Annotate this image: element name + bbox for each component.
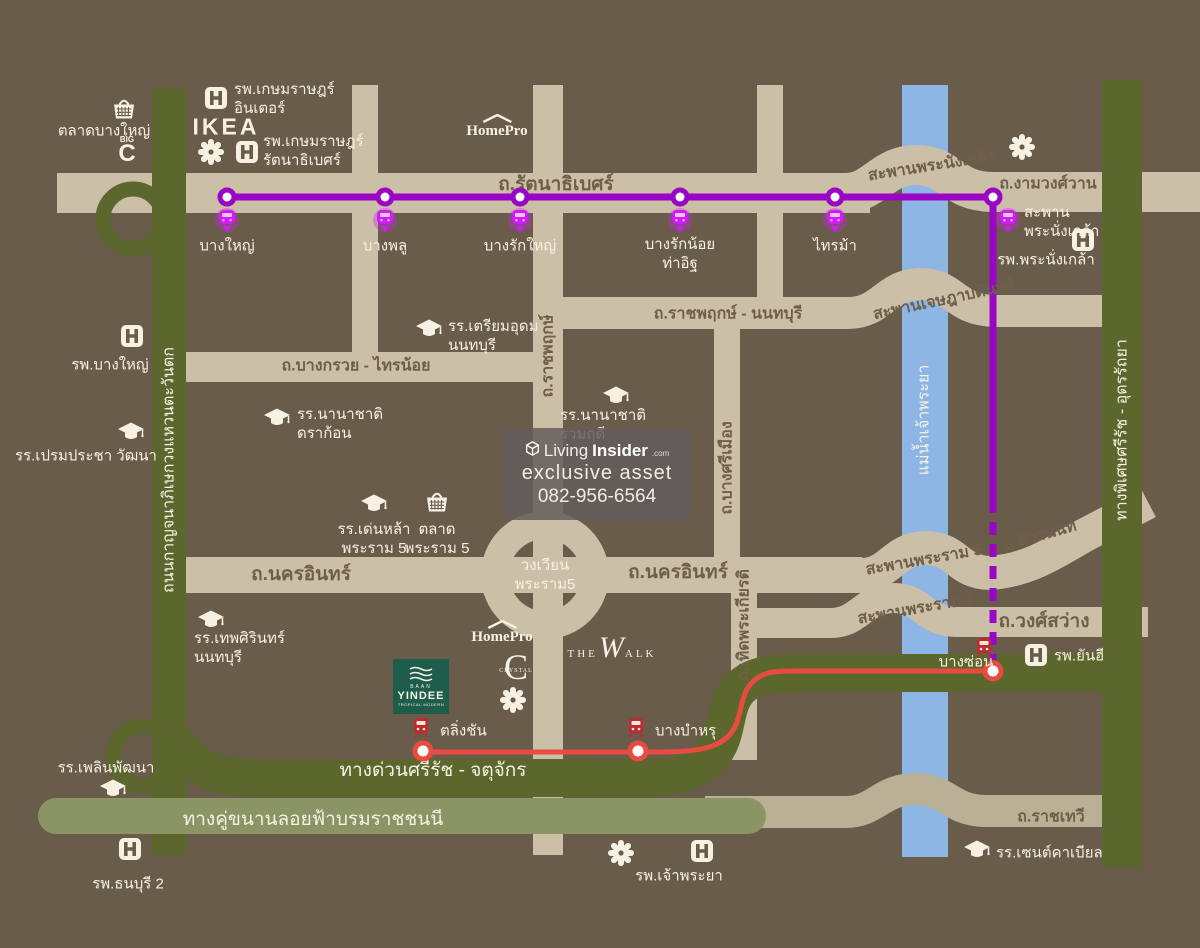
label-line: ตลาดบางใหญ่ — [58, 122, 150, 141]
station-label: บางซ่อน — [939, 653, 994, 672]
label-line: รร.นานาชาติ — [297, 405, 383, 424]
hospital-icon — [690, 839, 714, 863]
flower-icon — [1008, 133, 1036, 161]
school-icon — [415, 319, 443, 340]
road-label: ถ.ราชพฤกษ์ - นนทบุรี — [654, 302, 802, 327]
road-label: ถ.นครอินทร์ — [251, 559, 351, 589]
red-station-circle — [413, 741, 434, 762]
red-station-circle — [628, 741, 649, 762]
label-line: ตลิ่งชัน — [440, 722, 487, 741]
poi-label: รพ.บางใหญ่ — [71, 356, 148, 375]
label-line: รัตนาธิเบศร์ — [263, 151, 364, 170]
road-label: ถ.เทิดพระเกียรติ — [732, 569, 757, 681]
hospital-icon — [204, 86, 228, 110]
label-line: รร.เซนต์คาเบียล — [996, 844, 1103, 863]
station-label: ไทรม้า — [813, 237, 857, 256]
label-line: รพ.เกษมราษฎร์ — [234, 80, 335, 99]
ikea-logo: IKEA — [193, 114, 260, 141]
poi-label: รพ.เกษมราษฎร์อินเตอร์ — [234, 80, 335, 118]
road-label: ถนนกาญจนาภิเษกวงแหวนตะวันตก — [157, 347, 182, 593]
label-line: รร.นานาชาติ — [560, 406, 646, 425]
poi-label: รร.เซนต์คาเบียล — [996, 844, 1103, 863]
school-icon — [197, 610, 225, 631]
station-label: บางรักน้อยท่าอิฐ — [645, 235, 715, 273]
label-line: พระราม 5 — [338, 539, 411, 558]
label-line: ไทรม้า — [813, 237, 857, 256]
metro-pin-icon — [821, 207, 849, 237]
big-c-logo: BIG C — [118, 137, 135, 165]
flower-icon — [607, 839, 635, 867]
label-line: บางซ่อน — [939, 653, 994, 672]
station-label: บางรักใหญ่ — [484, 237, 556, 256]
label-line: พระราม5 — [515, 575, 576, 594]
label-line: พระราม 5 — [405, 539, 470, 558]
market-icon — [111, 96, 137, 121]
poi-label: รพ.เจ้าพระยา — [635, 867, 723, 886]
label-line: บางรักใหญ่ — [484, 237, 556, 256]
hospital-icon — [1024, 643, 1048, 667]
label-line: ดราก้อน — [297, 424, 383, 443]
label-line: บางใหญ่ — [199, 237, 254, 256]
label-line: สะพาน — [1024, 203, 1099, 222]
road-label: ถ.บางศรีเมือง — [715, 421, 740, 514]
hospital-icon — [120, 324, 144, 348]
label-line: วงเวียน — [515, 556, 576, 575]
metro-pin-icon — [213, 207, 241, 237]
baan-yindee-logo: BAAN YINDEE TROPICAL MODERN — [393, 659, 449, 714]
poi-label: รร.เตรียมอุดมนนทบุรี — [448, 317, 539, 355]
roof-icon — [485, 620, 519, 629]
flower-icon — [197, 138, 225, 166]
road-label: ทางด่วนศรีรัช - จตุจักร — [339, 755, 526, 785]
the-walk-w: W — [599, 631, 624, 665]
homepro-label: HomePro — [466, 123, 527, 140]
poi-label: รร.นานาชาติดราก้อน — [297, 405, 383, 443]
label-line: บางพลู — [363, 237, 407, 256]
map-canvas: ถ.รัตนาธิเบศร์สะพานพระนั่งเกล้าถ.งามวงศ์… — [0, 0, 1200, 948]
crystal-c: C — [499, 652, 533, 682]
metro-pin-icon — [666, 207, 694, 237]
purple-station-circle — [218, 188, 237, 207]
road-label: ถ.ติวานนท์ — [1001, 514, 1080, 559]
the-walk-logo: THE W ALK — [568, 631, 657, 665]
metro-pin-icon — [506, 207, 534, 237]
poi-label: รร.เด่นหล้าพระราม 5 — [338, 520, 411, 558]
roundabout-label: วงเวียนพระราม5 — [515, 556, 576, 594]
watermark-exclusive-asset: exclusive asset — [522, 462, 673, 485]
road-label: ทางพิเศษศรีรัช - อุดรรัถยา — [1110, 339, 1135, 521]
watermark-living: Living — [544, 441, 588, 461]
label-line: รพ.ยันฮี — [1054, 647, 1104, 666]
flower-icon — [499, 686, 527, 714]
homepro-label: HomePro — [471, 629, 532, 646]
poi-label: ตลาดบางใหญ่ — [58, 122, 150, 141]
big-c-c: C — [118, 143, 135, 165]
label-line: ตลาด — [405, 520, 470, 539]
purple-station-circle — [376, 188, 395, 207]
school-icon — [360, 494, 388, 515]
cube-icon — [525, 441, 540, 456]
metro-pin-icon — [994, 207, 1022, 237]
road-label: แม่น้ำเจ้าพระยา — [912, 365, 937, 476]
poi-label: รร.เปรมประชา วัฒนา — [15, 447, 157, 466]
homepro-logo: HomePro — [471, 620, 532, 646]
train-icon — [626, 717, 646, 739]
hospital-icon — [235, 140, 259, 164]
poi-label: รพ.พระนั่งเกล้า — [997, 251, 1095, 270]
crystal-text: CRYSTAL — [499, 668, 533, 674]
label-line: รร.เตรียมอุดม — [448, 317, 539, 336]
label-line: นนทบุรี — [448, 336, 539, 355]
road-label: สะพานพระนั่งเกล้า — [866, 144, 998, 189]
station-label: ตลิ่งชัน — [440, 722, 487, 741]
label-line: รร.เด่นหล้า — [338, 520, 411, 539]
label-line: รร.เทพศิรินทร์ — [194, 629, 285, 648]
purple-station-circle — [826, 188, 845, 207]
station-label: สะพานพระนั่งเกล้า — [1024, 203, 1099, 241]
station-label: บางบำหรุ — [655, 722, 716, 741]
purple-station-circle — [984, 188, 1003, 207]
living-insider-watermark: LivingInsider.com exclusive asset 082-95… — [503, 428, 691, 520]
road-label: ถ.ราชเทวี — [1017, 805, 1085, 830]
label-line: รร.เปรมประชา วัฒนา — [15, 447, 157, 466]
label-line: ท่าอิฐ — [645, 254, 715, 273]
road-label: สะพานเจษฎาบดินทร์ — [871, 273, 1018, 328]
label-line: บางรักน้อย — [645, 235, 715, 254]
school-icon — [99, 779, 127, 800]
homepro-logo: HomePro — [466, 114, 527, 140]
road-label: ถ.งามวงศ์วาน — [999, 172, 1096, 197]
metro-pin-icon — [371, 207, 399, 237]
the-crystal-logo: C CRYSTAL — [499, 652, 533, 674]
label-line: รพ.บางใหญ่ — [71, 356, 148, 375]
road-label: สะพานพระราม 5 — [864, 537, 985, 582]
school-icon — [963, 840, 991, 861]
label-line: บางบำหรุ — [655, 722, 716, 741]
watermark-insider: Insider — [592, 441, 648, 461]
label-line: นนทบุรี — [194, 648, 285, 667]
yindee-name: YINDEE — [398, 690, 445, 702]
label-line: รพ.เจ้าพระยา — [635, 867, 723, 886]
train-icon — [411, 717, 431, 739]
watermark-phone: 082-956-6564 — [538, 486, 656, 508]
the-walk-the: THE — [568, 648, 598, 660]
school-icon — [263, 408, 291, 429]
road-label: ทางคู่ขนานลอยฟ้าบรมราชชนนี — [183, 804, 444, 834]
road-label: ถ.ราชพฤกษ์ — [536, 314, 561, 397]
label-line: รร.เพลินพัฒนา — [58, 759, 155, 778]
station-label: บางใหญ่ — [199, 237, 254, 256]
road-label: ถ.วงศ์สว่าง — [998, 606, 1089, 636]
yindee-sub: TROPICAL MODERN — [398, 702, 444, 707]
road-label: สะพานพระราม 7 — [856, 586, 977, 631]
poi-label: ตลาดพระราม 5 — [405, 520, 470, 558]
road-label: ถ.นครอินทร์ — [628, 557, 728, 587]
label-line: พระนั่งเกล้า — [1024, 222, 1099, 241]
label-line: รพ.พระนั่งเกล้า — [997, 251, 1095, 270]
market-icon — [424, 489, 450, 514]
poi-label: รร.เทพศิรินทร์นนทบุรี — [194, 629, 285, 667]
road-label: ถ.บางกรวย - ไทรน้อย — [281, 354, 430, 379]
purple-station-circle — [511, 188, 530, 207]
roof-icon — [480, 114, 514, 123]
school-icon — [117, 422, 145, 443]
hospital-icon — [118, 837, 142, 861]
station-label: บางพลู — [363, 237, 407, 256]
poi-label: รร.เพลินพัฒนา — [58, 759, 155, 778]
watermark-com: .com — [652, 449, 669, 458]
the-walk-alk: ALK — [625, 648, 657, 660]
poi-label: รพ.ยันฮี — [1054, 647, 1104, 666]
school-icon — [602, 386, 630, 407]
label-line: รพ.ธนบุรี 2 — [92, 875, 164, 894]
purple-station-circle — [671, 188, 690, 207]
poi-label: รพ.ธนบุรี 2 — [92, 875, 164, 894]
label-line: รพ.เกษมราษฎร์ — [263, 132, 364, 151]
poi-label: รพ.เกษมราษฎร์รัตนาธิเบศร์ — [263, 132, 364, 170]
yindee-waves-icon — [408, 666, 434, 682]
